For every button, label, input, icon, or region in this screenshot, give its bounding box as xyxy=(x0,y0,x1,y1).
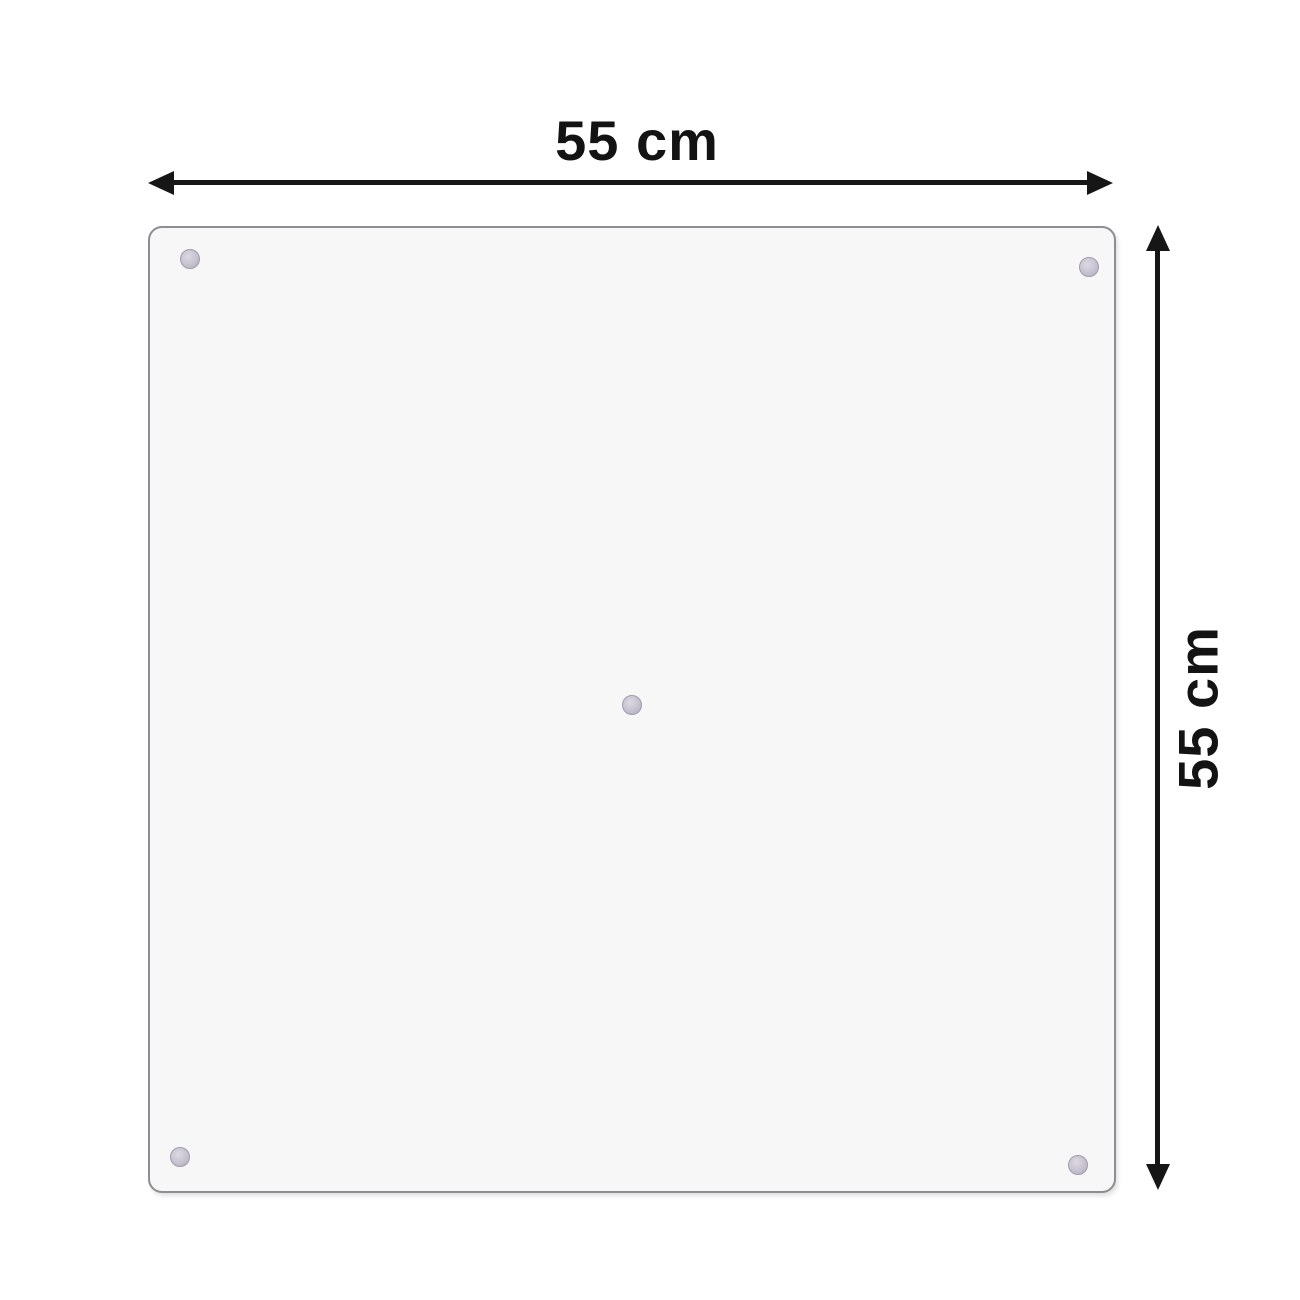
width-arrow-line xyxy=(170,180,1091,185)
suction-cup-top-right xyxy=(1079,257,1099,277)
product-dimension-diagram: 55 cm 55 cm xyxy=(0,0,1300,1300)
suction-cup-bottom-right xyxy=(1068,1155,1088,1175)
arrowhead-down-icon xyxy=(1146,1164,1170,1190)
height-dimension-label: 55 cm xyxy=(1166,626,1231,790)
height-arrow-line xyxy=(1155,247,1160,1168)
width-dimension-label: 55 cm xyxy=(555,108,719,173)
glass-panel xyxy=(148,226,1116,1193)
arrowhead-right-icon xyxy=(1087,171,1113,195)
suction-cup-center xyxy=(622,695,642,715)
width-dimension-arrow xyxy=(148,171,1113,195)
suction-cup-bottom-left xyxy=(170,1147,190,1167)
suction-cup-top-left xyxy=(180,249,200,269)
